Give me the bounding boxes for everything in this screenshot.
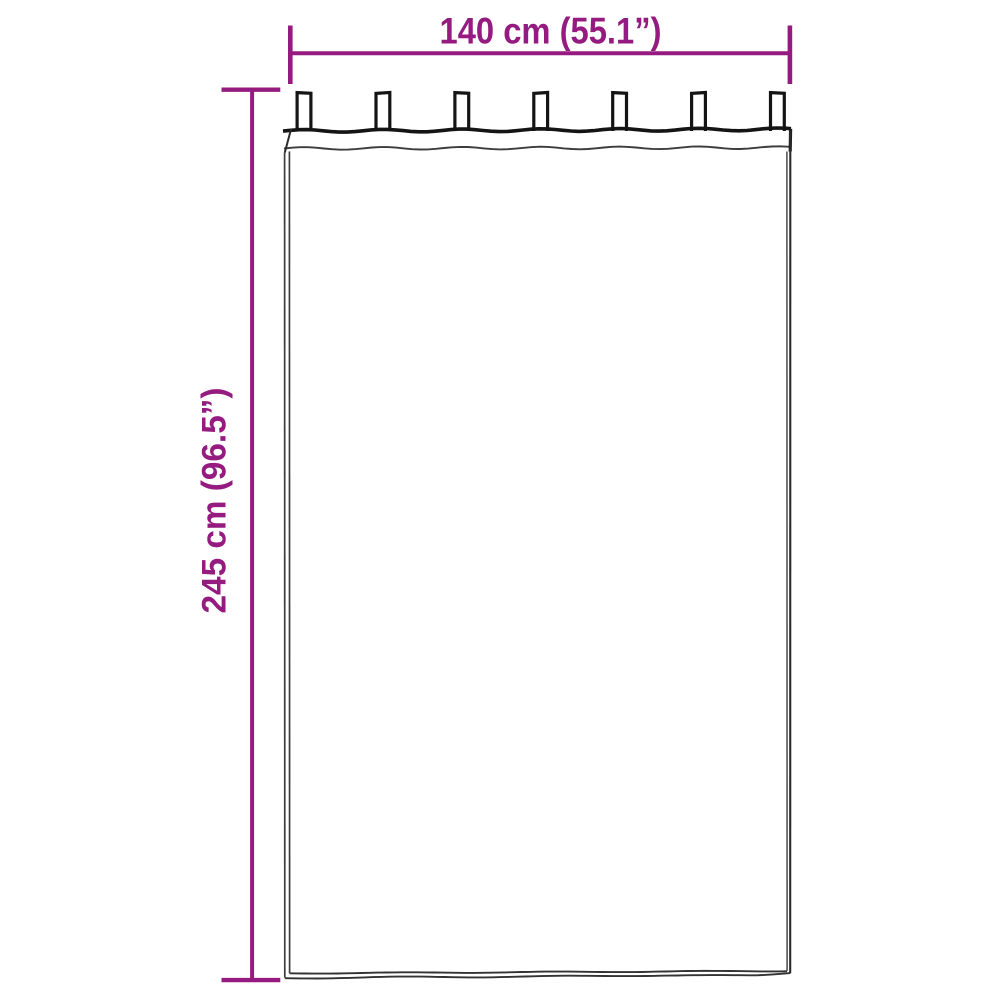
svg-text:140 cm (55.1”): 140 cm (55.1”) <box>440 11 662 52</box>
svg-text:245 cm (96.5”): 245 cm (96.5”) <box>195 388 233 614</box>
